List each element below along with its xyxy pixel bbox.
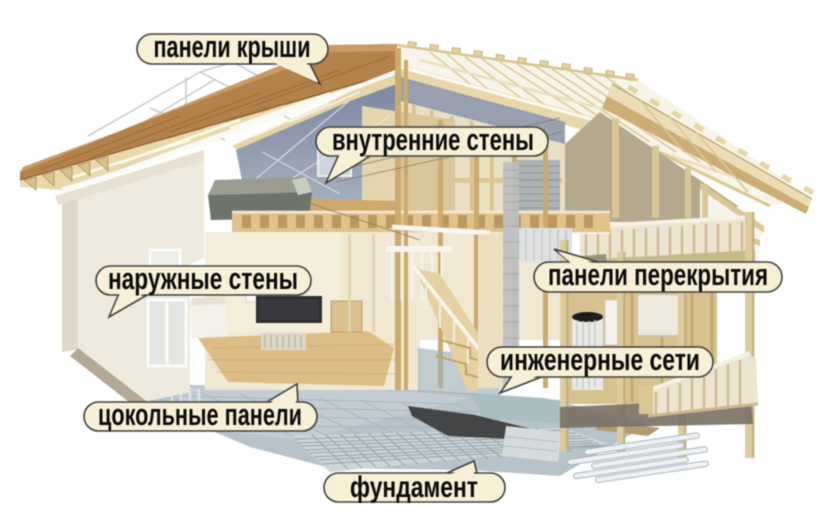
svg-text:панели крыши: панели крыши: [154, 29, 311, 64]
svg-text:наружные стены: наружные стены: [108, 261, 298, 296]
svg-text:внутренние стены: внутренние стены: [332, 122, 534, 157]
svg-text:инженерные сети: инженерные сети: [500, 342, 700, 377]
svg-text:цокольные панели: цокольные панели: [98, 397, 302, 432]
svg-text:панели перекрытия: панели перекрытия: [548, 257, 768, 292]
svg-text:фундамент: фундамент: [350, 471, 478, 504]
